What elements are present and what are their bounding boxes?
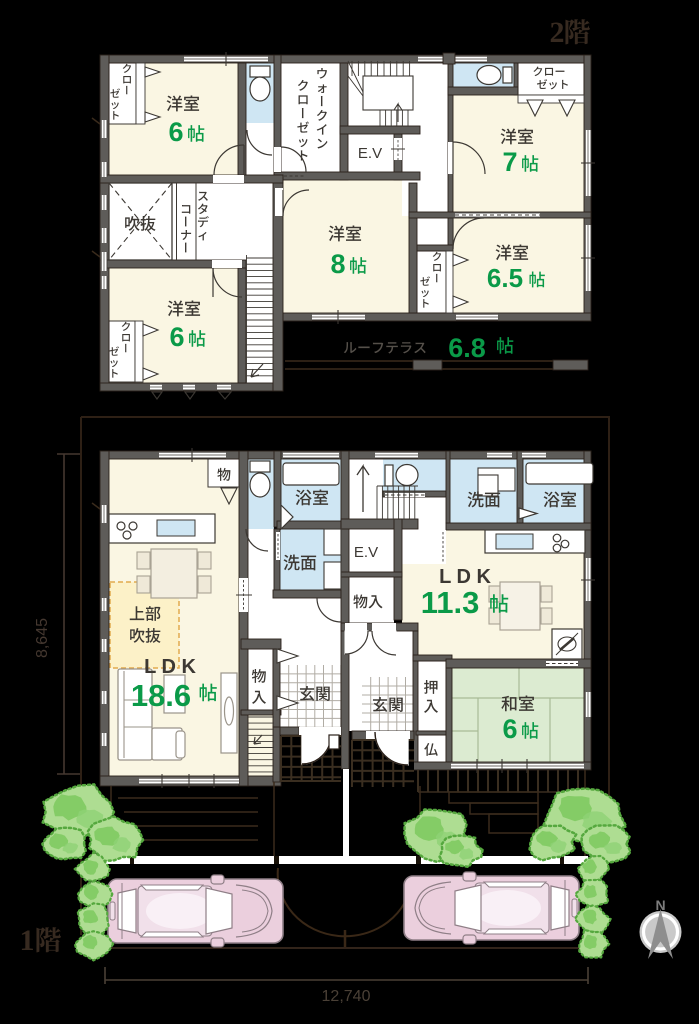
svg-text:18.6: 18.6	[131, 678, 191, 713]
svg-text:8: 8	[330, 249, 345, 279]
svg-text:8,645: 8,645	[34, 618, 51, 658]
svg-text:6: 6	[168, 117, 183, 147]
svg-text:11.3: 11.3	[421, 585, 480, 620]
svg-text:L D K: L D K	[144, 656, 196, 678]
svg-text:E.V: E.V	[354, 544, 378, 561]
svg-text:6: 6	[502, 714, 517, 744]
svg-text:12,740: 12,740	[322, 988, 371, 1005]
svg-text:1: 1	[20, 924, 35, 957]
svg-text:N: N	[655, 897, 665, 913]
svg-text:2: 2	[550, 16, 565, 49]
svg-text:E.V: E.V	[358, 145, 382, 162]
svg-text:6: 6	[169, 322, 184, 352]
svg-text:6.8: 6.8	[448, 333, 486, 363]
svg-text:6.5: 6.5	[487, 263, 523, 293]
svg-text:7: 7	[502, 147, 517, 177]
